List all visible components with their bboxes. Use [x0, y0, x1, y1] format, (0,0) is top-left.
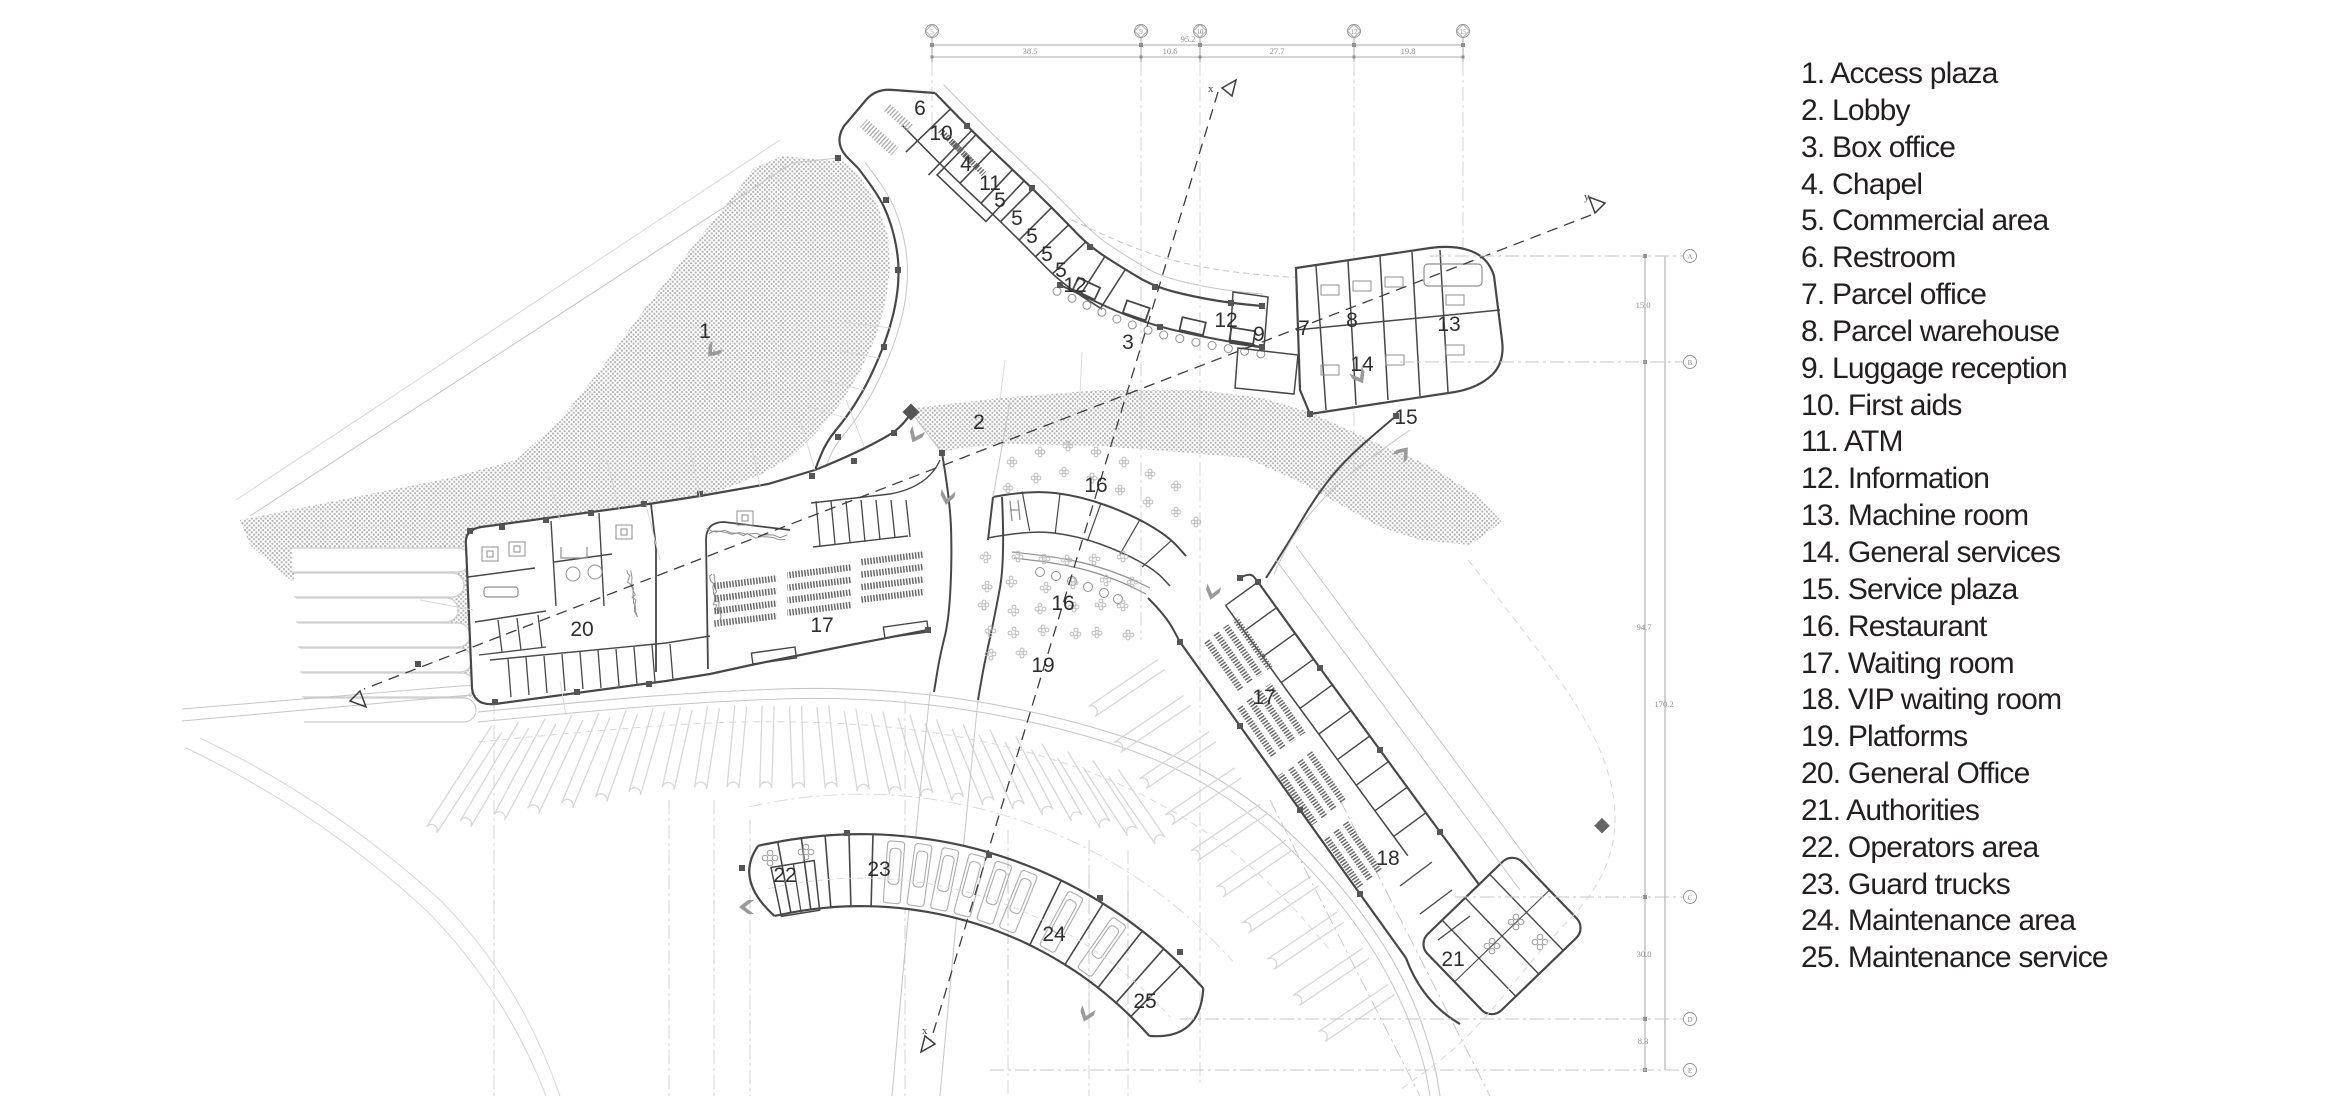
- svg-text:E: E: [1688, 1067, 1692, 1075]
- svg-text:13: 13: [1437, 313, 1460, 336]
- svg-text:16: 16: [1084, 474, 1107, 497]
- svg-text:B: B: [1688, 359, 1693, 367]
- svg-text:25: 25: [1133, 990, 1156, 1013]
- svg-text:7: 7: [1298, 317, 1310, 340]
- svg-text:94.7: 94.7: [1637, 622, 1652, 632]
- svg-text:17: 17: [1252, 686, 1275, 709]
- svg-text:y: y: [1584, 191, 1590, 203]
- svg-text:8: 8: [1346, 309, 1358, 332]
- svg-text:15.0: 15.0: [1636, 300, 1651, 310]
- svg-text:9: 9: [1139, 28, 1143, 36]
- svg-text:27.7: 27.7: [1270, 46, 1285, 56]
- svg-text:2: 2: [973, 411, 985, 434]
- svg-text:5: 5: [930, 28, 934, 36]
- svg-text:21: 21: [1441, 948, 1464, 971]
- svg-text:D: D: [1687, 1016, 1692, 1024]
- svg-text:9: 9: [1253, 323, 1265, 346]
- svg-text:30.0: 30.0: [1637, 949, 1652, 959]
- svg-text:10: 10: [929, 122, 952, 145]
- svg-text:x: x: [1208, 83, 1214, 95]
- svg-text:12: 12: [1351, 28, 1359, 36]
- svg-text:24: 24: [1042, 923, 1066, 946]
- svg-text:A: A: [1687, 253, 1692, 261]
- svg-text:x: x: [922, 1025, 928, 1037]
- svg-text:10.6: 10.6: [1163, 46, 1178, 56]
- svg-text:4: 4: [960, 153, 972, 176]
- svg-text:15: 15: [1460, 28, 1468, 36]
- svg-text:10: 10: [1197, 28, 1205, 36]
- svg-text:19.8: 19.8: [1401, 46, 1416, 56]
- svg-text:16: 16: [1051, 592, 1074, 615]
- svg-text:19: 19: [1031, 654, 1054, 677]
- svg-text:5: 5: [1011, 207, 1023, 230]
- svg-text:15: 15: [1394, 406, 1417, 429]
- svg-text:38.5: 38.5: [1023, 46, 1038, 56]
- svg-text:6: 6: [914, 97, 926, 120]
- svg-text:12: 12: [1214, 309, 1237, 332]
- svg-text:18: 18: [1376, 847, 1399, 870]
- svg-text:17: 17: [810, 614, 833, 637]
- svg-text:14: 14: [1350, 353, 1374, 376]
- svg-text:23: 23: [867, 858, 890, 881]
- svg-text:20: 20: [570, 618, 593, 641]
- svg-text:11: 11: [979, 172, 1001, 195]
- svg-text:C: C: [1688, 894, 1693, 902]
- svg-text:170.2: 170.2: [1654, 699, 1673, 709]
- svg-text:95.2: 95.2: [1181, 34, 1196, 44]
- svg-text:22: 22: [773, 864, 796, 887]
- svg-text:3: 3: [1122, 331, 1134, 354]
- svg-text:8.3: 8.3: [1638, 1036, 1649, 1046]
- svg-text:1: 1: [699, 320, 711, 343]
- svg-text:12: 12: [1063, 274, 1086, 297]
- svg-text:5: 5: [1026, 225, 1038, 248]
- svg-text:5: 5: [1041, 243, 1053, 266]
